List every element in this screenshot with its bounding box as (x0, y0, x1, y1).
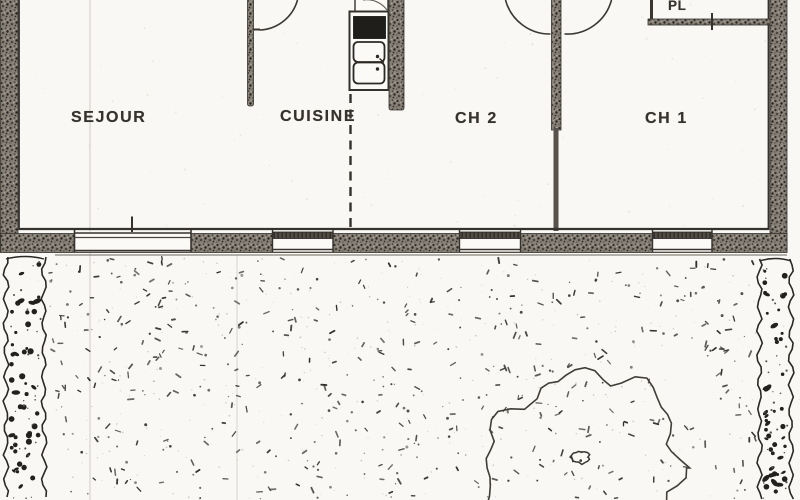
garden-area (3, 257, 794, 500)
bush-outline (486, 368, 690, 500)
window-ch2 (460, 229, 521, 252)
wall-ch2-ch1-upper (552, 0, 562, 130)
room-label-cuisine: CUISINE (280, 108, 356, 126)
sink-drain (376, 67, 379, 70)
bush-small-blob (570, 451, 590, 464)
hedge-left (3, 257, 47, 500)
wall-ch2-ch1-lower (554, 128, 559, 231)
window-ch1 (653, 229, 713, 252)
room-label-pl: PL (668, 0, 686, 13)
wall-right (770, 0, 787, 252)
window-sejour (75, 217, 192, 253)
sink-basin-lower (354, 63, 385, 84)
room-label-sejour: SEJOUR (71, 109, 146, 127)
kitchen-hob (354, 17, 386, 39)
wall-left (1, 0, 19, 252)
hedge-right (757, 259, 794, 500)
room-label-ch2: CH 2 (455, 110, 498, 128)
door-arc-ch1 (565, 0, 612, 34)
window-cuisine (273, 229, 334, 252)
sink-drain (376, 55, 379, 58)
closet-pl (648, 0, 770, 30)
door-arc-sejour (260, 0, 298, 30)
kitchen-fixtures (350, 0, 389, 90)
floor-plan-drawing (0, 0, 800, 500)
floor-plan: SEJOUR CUISINE CH 2 CH 1 PL (0, 0, 800, 500)
wall-cuisine-hall (389, 0, 404, 110)
room-label-ch1: CH 1 (645, 110, 688, 128)
wall-sejour-cuisine (248, 0, 254, 106)
door-arc-ch2 (506, 0, 551, 34)
